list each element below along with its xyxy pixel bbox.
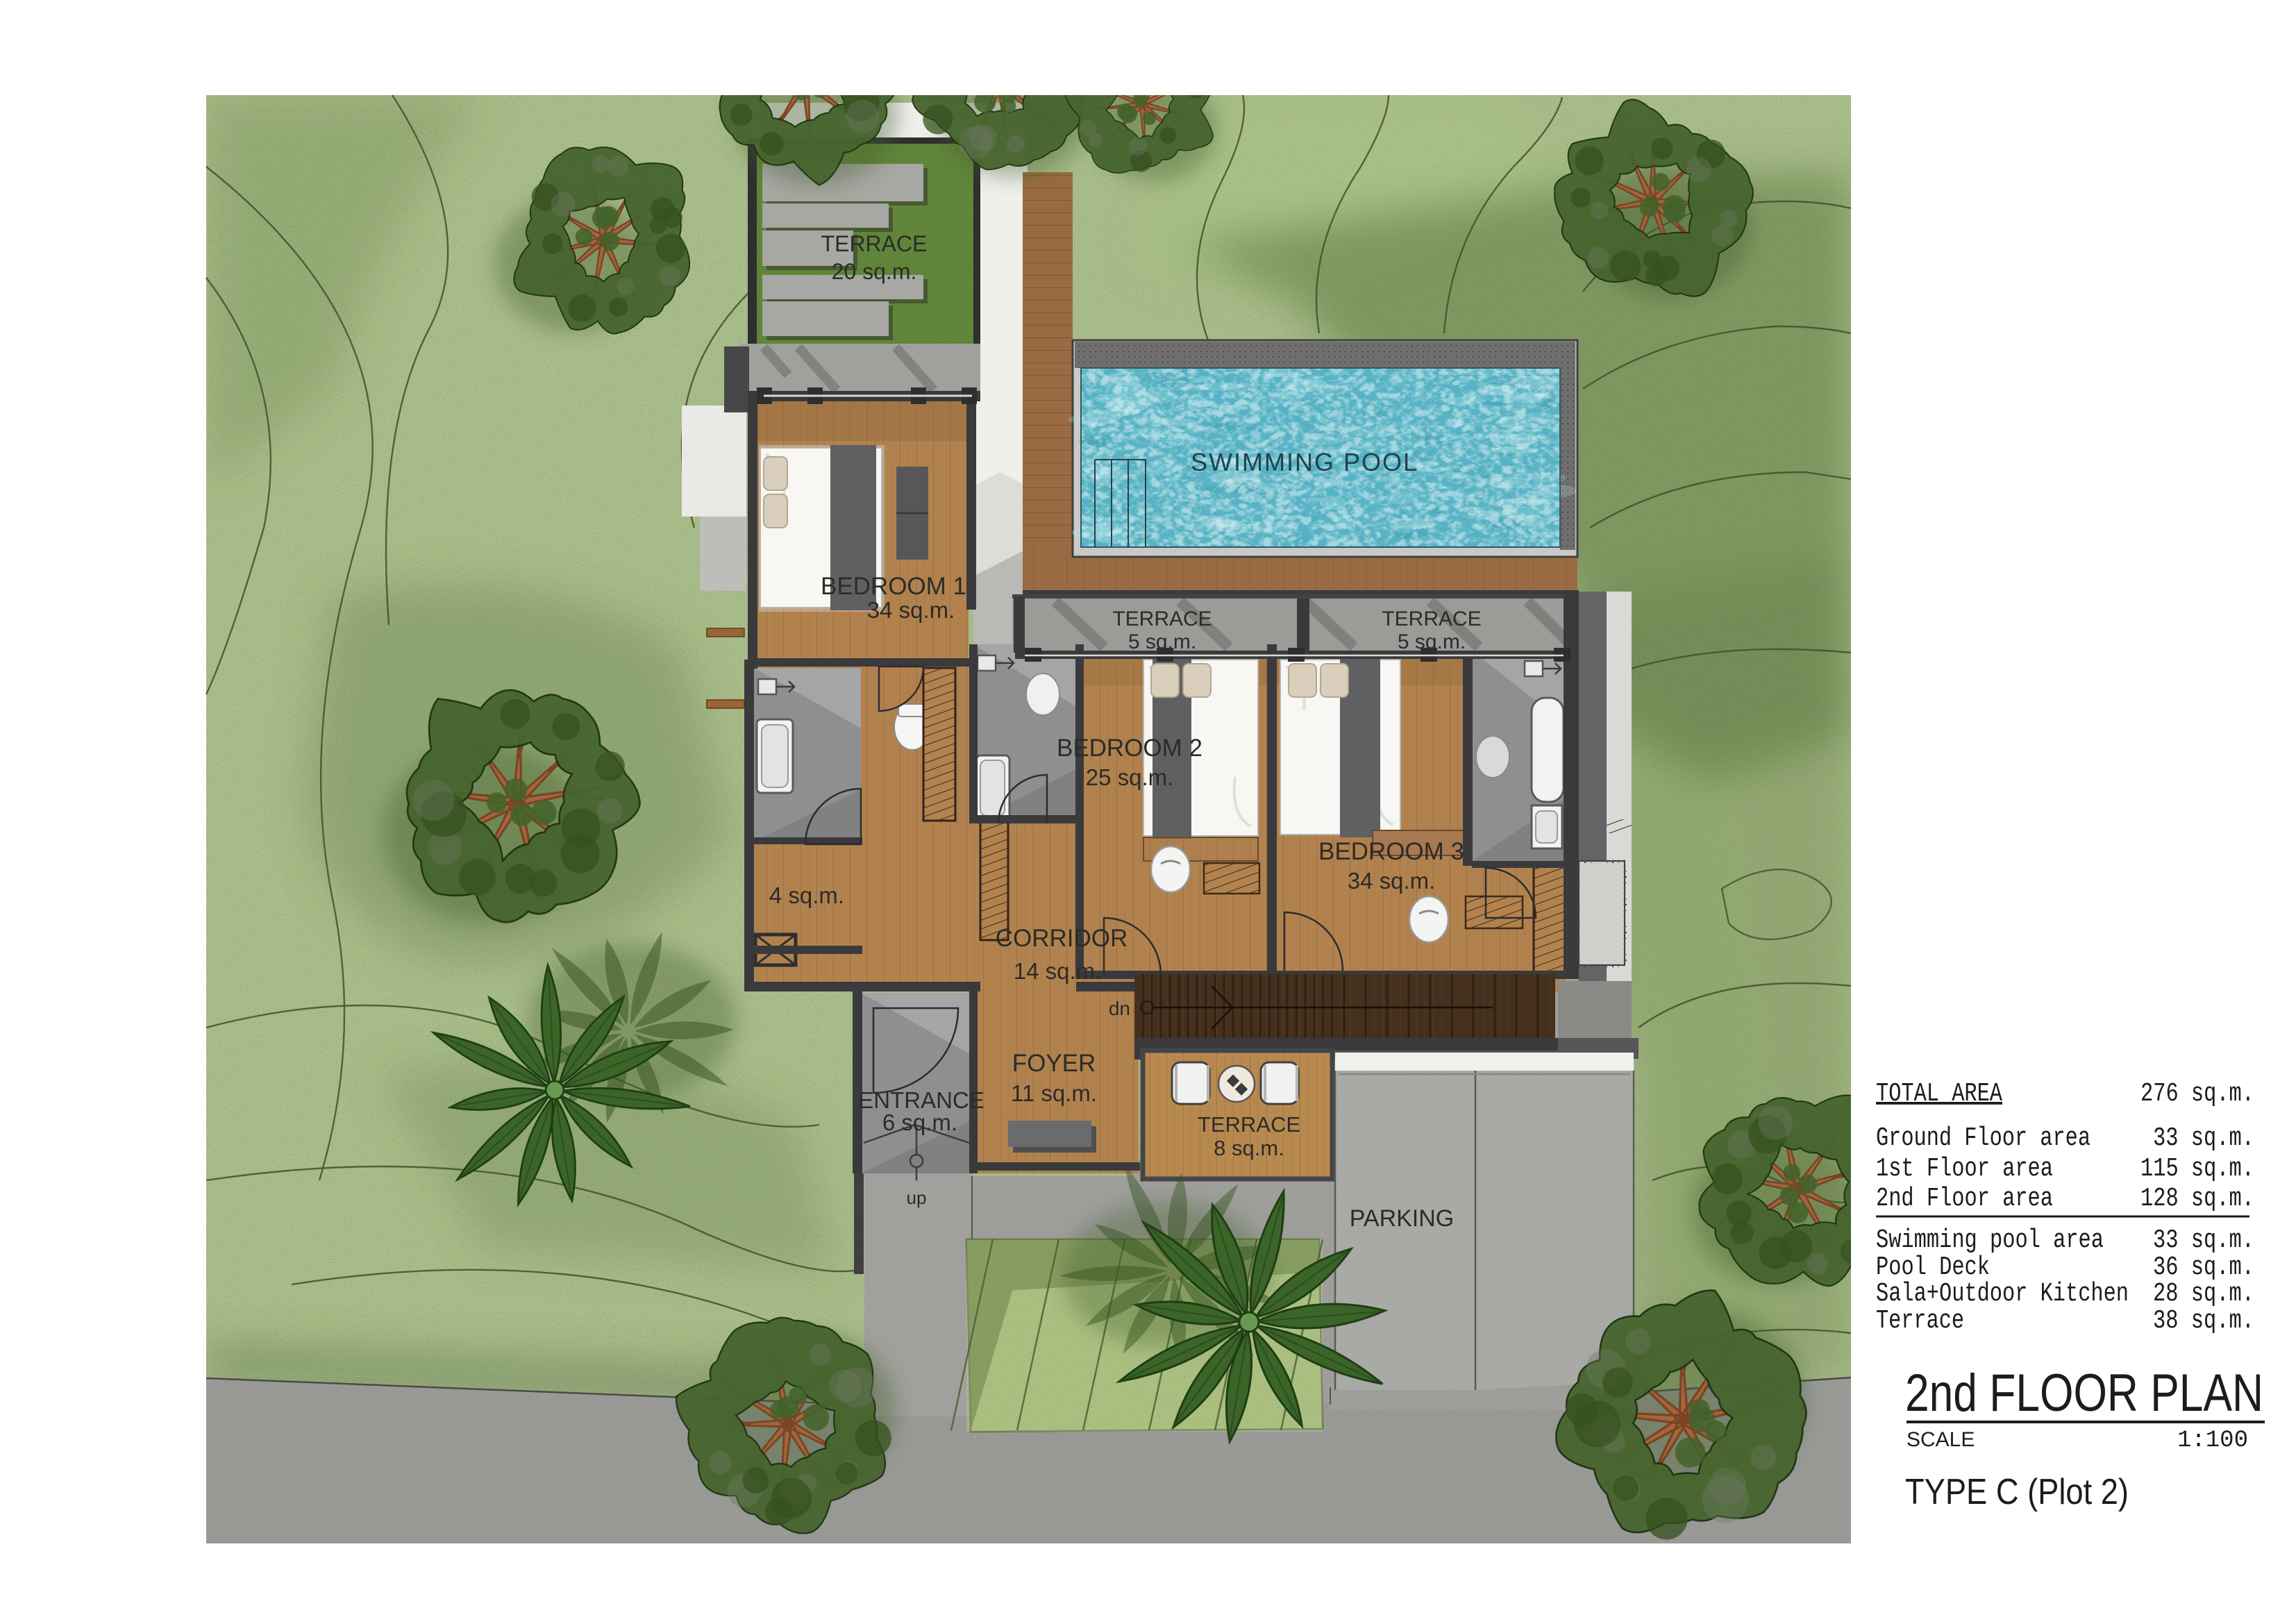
svg-text:276 sq.m.: 276 sq.m. <box>2140 1079 2254 1109</box>
svg-text:TERRACE: TERRACE <box>1198 1112 1300 1137</box>
svg-text:SCALE: SCALE <box>1907 1428 1975 1451</box>
svg-text:PARKING: PARKING <box>1350 1205 1455 1232</box>
svg-text:CORRIDOR: CORRIDOR <box>996 925 1128 952</box>
svg-text:TERRACE: TERRACE <box>821 231 928 256</box>
svg-text:Pool Deck: Pool Deck <box>1876 1253 1990 1282</box>
svg-text:115 sq.m.: 115 sq.m. <box>2140 1154 2254 1184</box>
svg-text:20 sq.m.: 20 sq.m. <box>832 259 917 284</box>
svg-text:6 sq.m.: 6 sq.m. <box>882 1110 957 1135</box>
svg-text:2nd FLOOR PLAN: 2nd FLOOR PLAN <box>1905 1364 2263 1423</box>
svg-text:Terrace: Terrace <box>1876 1306 1964 1336</box>
svg-text:36 sq.m.: 36 sq.m. <box>2153 1253 2254 1282</box>
svg-text:TYPE C (Plot 2): TYPE C (Plot 2) <box>1905 1472 2129 1512</box>
svg-text:dn: dn <box>1109 998 1130 1019</box>
svg-text:1st Floor area: 1st Floor area <box>1876 1154 2053 1184</box>
svg-text:Sala+Outdoor Kitchen: Sala+Outdoor Kitchen <box>1876 1279 2129 1309</box>
svg-text:FOYER: FOYER <box>1012 1050 1096 1077</box>
svg-text:128 sq.m.: 128 sq.m. <box>2140 1184 2254 1214</box>
svg-text:34 sq.m.: 34 sq.m. <box>867 597 955 623</box>
svg-text:25 sq.m.: 25 sq.m. <box>1086 764 1174 790</box>
svg-text:SWIMMING POOL: SWIMMING POOL <box>1191 448 1418 476</box>
svg-text:BEDROOM 3: BEDROOM 3 <box>1318 838 1464 865</box>
svg-text:34 sq.m.: 34 sq.m. <box>1348 868 1436 894</box>
svg-text:TERRACE: TERRACE <box>1112 608 1212 630</box>
svg-text:Ground Floor area: Ground Floor area <box>1876 1123 2090 1153</box>
svg-text:Swimming pool area: Swimming pool area <box>1876 1225 2104 1255</box>
svg-text:38 sq.m.: 38 sq.m. <box>2153 1306 2254 1336</box>
svg-text:1:100: 1:100 <box>2177 1428 2248 1454</box>
svg-text:4 sq.m.: 4 sq.m. <box>769 882 844 908</box>
svg-text:14 sq.m.: 14 sq.m. <box>1014 958 1102 984</box>
svg-text:8 sq.m.: 8 sq.m. <box>1214 1136 1284 1160</box>
svg-text:2nd Floor area: 2nd Floor area <box>1876 1184 2053 1214</box>
svg-text:up: up <box>907 1187 927 1208</box>
svg-text:TOTAL AREA: TOTAL AREA <box>1876 1079 2002 1109</box>
svg-text:11 sq.m.: 11 sq.m. <box>1011 1080 1097 1106</box>
svg-text:33 sq.m.: 33 sq.m. <box>2153 1225 2254 1255</box>
svg-text:33 sq.m.: 33 sq.m. <box>2153 1123 2254 1153</box>
svg-text:BEDROOM 2: BEDROOM 2 <box>1057 735 1203 762</box>
svg-text:BEDROOM 1: BEDROOM 1 <box>821 573 966 600</box>
svg-text:28 sq.m.: 28 sq.m. <box>2153 1279 2254 1309</box>
svg-text:TERRACE: TERRACE <box>1382 608 1481 630</box>
